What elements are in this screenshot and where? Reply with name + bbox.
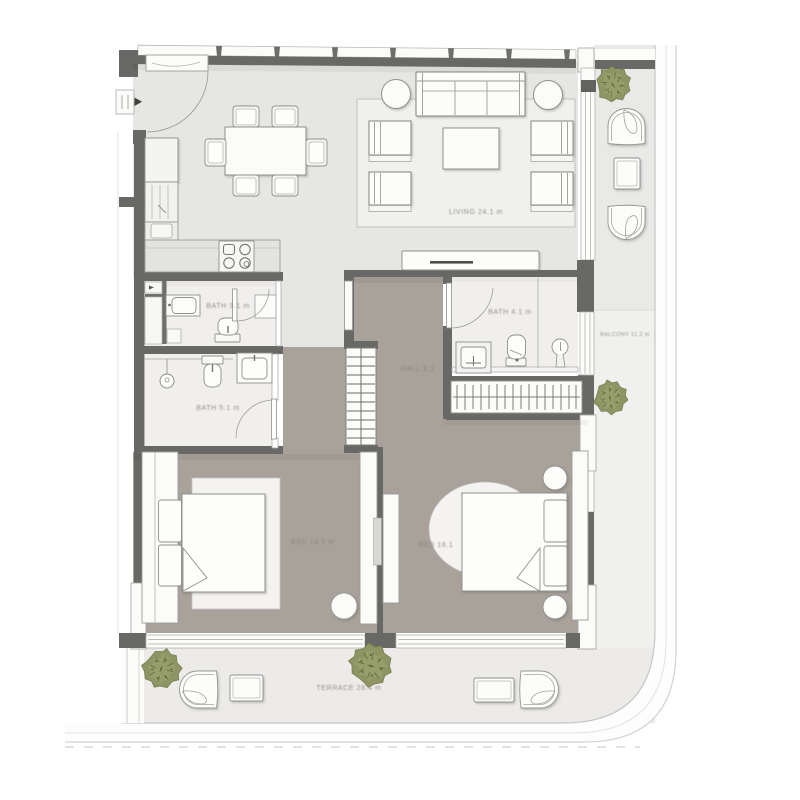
- svg-text:BED 14.5 m: BED 14.5 m: [291, 539, 335, 546]
- svg-text:BALCONY 11.2 m: BALCONY 11.2 m: [600, 332, 650, 338]
- svg-text:HALL 8.2: HALL 8.2: [401, 366, 435, 373]
- svg-text:BATH 3.1 m: BATH 3.1 m: [206, 303, 250, 310]
- svg-text:BED 16.1: BED 16.1: [419, 542, 454, 549]
- svg-text:BATH 5.1 m: BATH 5.1 m: [196, 405, 240, 412]
- svg-text:BATH 4.1 m: BATH 4.1 m: [488, 309, 532, 316]
- svg-text:LIVING 24.1 m: LIVING 24.1 m: [449, 209, 503, 216]
- svg-text:TERRACE 28.4 m: TERRACE 28.4 m: [316, 685, 381, 692]
